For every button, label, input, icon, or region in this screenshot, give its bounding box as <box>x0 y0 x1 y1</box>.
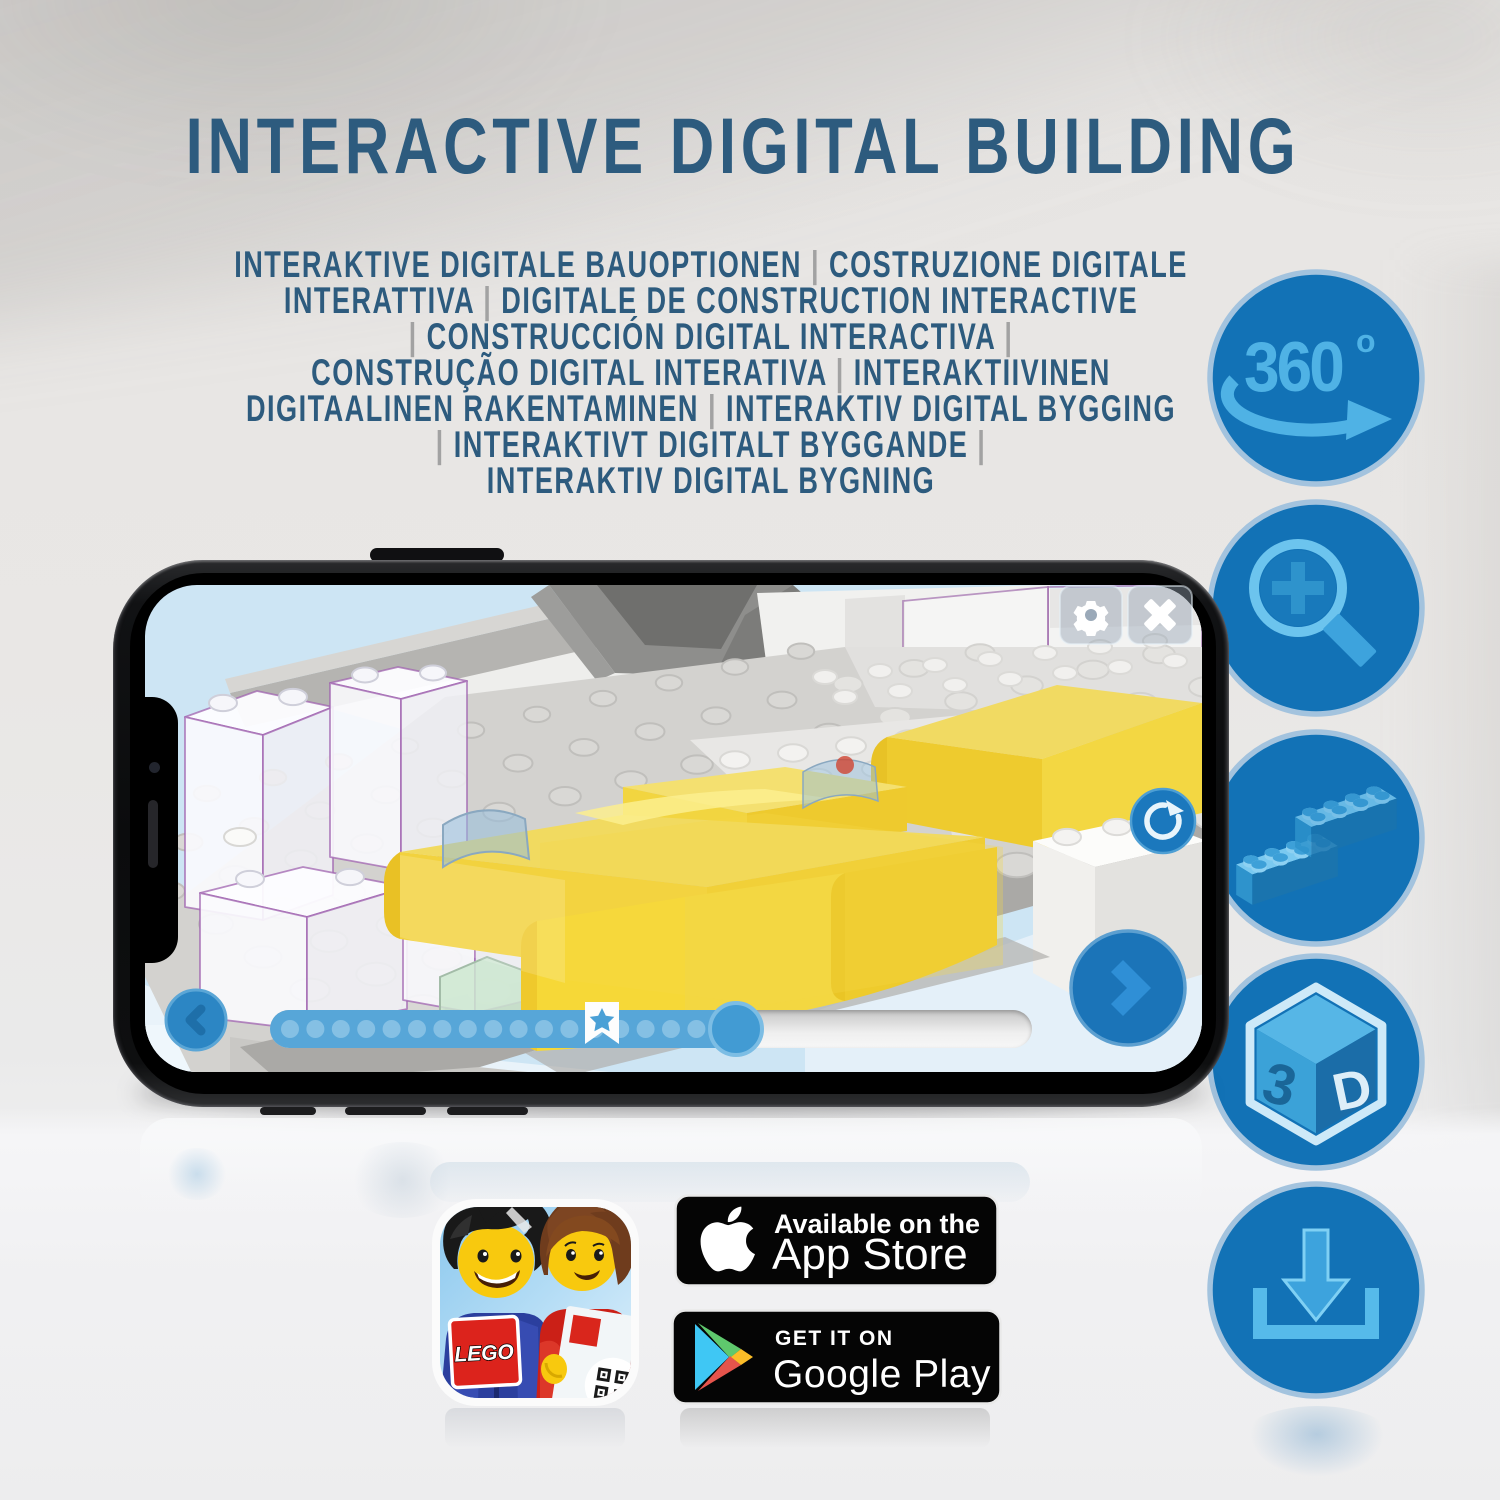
svg-text:360: 360 <box>1244 328 1342 406</box>
svg-text:LEGO: LEGO <box>454 1341 515 1367</box>
svg-text:GET IT ON: GET IT ON <box>775 1327 894 1350</box>
svg-text:Google Play: Google Play <box>773 1353 991 1396</box>
svg-text:App Store: App Store <box>772 1230 968 1279</box>
svg-text:o: o <box>1356 323 1376 359</box>
